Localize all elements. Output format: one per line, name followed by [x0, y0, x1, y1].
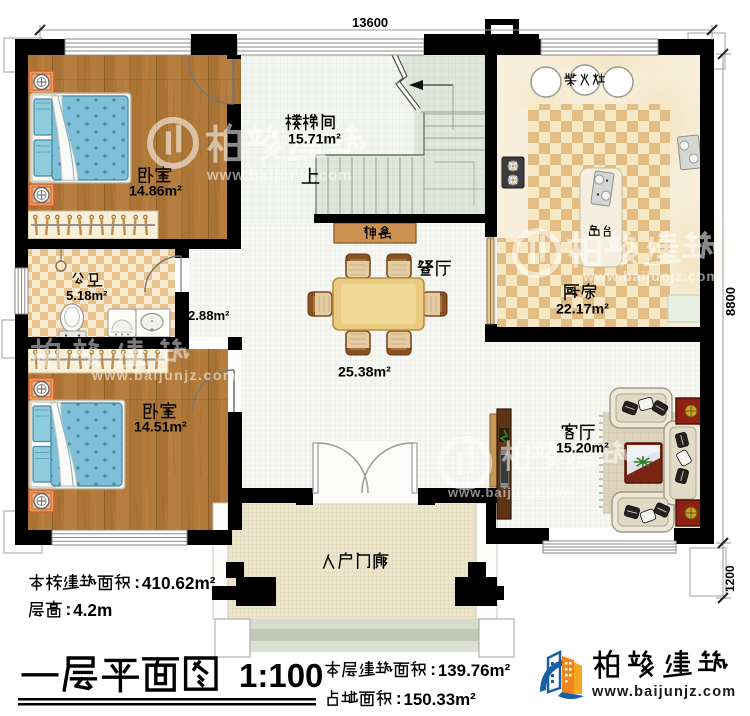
svg-text:25.38m²: 25.38m²: [338, 365, 391, 381]
svg-text::: :: [430, 659, 436, 679]
svg-text::: :: [66, 599, 72, 619]
svg-text:14.51m²: 14.51m²: [134, 420, 187, 436]
svg-text:14.86m²: 14.86m²: [129, 184, 182, 200]
svg-text:www.baijunjz.com: www.baijunjz.com: [591, 684, 736, 700]
svg-text::: :: [396, 688, 402, 708]
svg-text:4.2m: 4.2m: [73, 600, 112, 620]
svg-text:1200: 1200: [723, 565, 737, 592]
svg-text:www.baijunjz.com: www.baijunjz.com: [91, 367, 237, 383]
svg-text:22.17m²: 22.17m²: [556, 302, 609, 318]
svg-text:15.20m²: 15.20m²: [556, 441, 609, 457]
svg-text:www.baijunjz.com: www.baijunjz.com: [206, 167, 352, 184]
svg-text:8800: 8800: [723, 287, 738, 316]
svg-text:150.33m²: 150.33m²: [404, 690, 477, 709]
svg-text:5.18m²: 5.18m²: [66, 288, 108, 303]
svg-text::: :: [134, 572, 140, 592]
svg-text:2.88m²: 2.88m²: [188, 308, 230, 323]
svg-text:139.76m²: 139.76m²: [438, 661, 511, 680]
svg-text:13600: 13600: [352, 15, 388, 30]
svg-text:www.baijunjz.com: www.baijunjz.com: [447, 485, 576, 500]
svg-text:15.71m²: 15.71m²: [288, 132, 341, 148]
svg-text:1:100: 1:100: [239, 657, 323, 694]
svg-text:410.62m²: 410.62m²: [142, 573, 216, 593]
svg-text:www.baijunjz.com: www.baijunjz.com: [582, 268, 720, 284]
